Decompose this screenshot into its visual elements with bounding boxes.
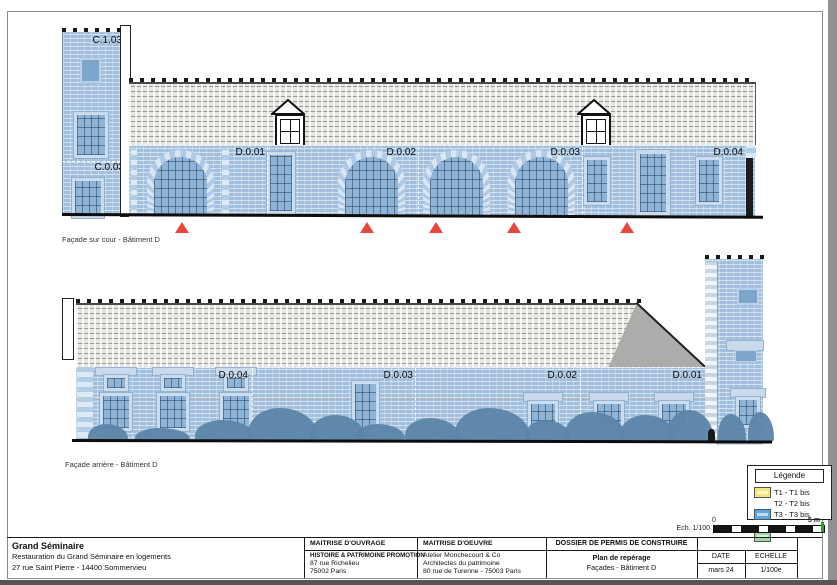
titleblock-top-line xyxy=(7,537,822,538)
moe-name: Atelier Monchecourt & Co xyxy=(423,552,500,560)
dossier-subtitle: Façades - Bâtiment D xyxy=(546,564,697,572)
moa-header: MAITRISE D'OUVRAGE xyxy=(310,540,385,548)
drawing-sheet: C.1.03 C.0.03 xyxy=(0,0,837,585)
titleblock-vline xyxy=(304,537,305,578)
moe-header: MAITRISE D'OEUVRE xyxy=(423,540,493,548)
echelle-header: ECHELLE xyxy=(745,553,797,561)
moa-name: HISTOIRE & PATRIMOINE PROMOTION xyxy=(310,552,425,559)
moa-line2: 87 rue Richelieu xyxy=(310,560,359,568)
date-value: mars 24 xyxy=(697,567,745,575)
date-header: DATE xyxy=(697,553,745,561)
project-line3: 27 rue Saint Pierre - 14400 Sommervieu xyxy=(12,564,146,573)
titleblock-hline xyxy=(697,563,798,564)
titleblock-vline xyxy=(797,537,798,578)
moe-line2: Architectes du patrimoine xyxy=(423,560,500,568)
project-line2: Restauration du Grand Séminaire en logem… xyxy=(12,553,171,562)
title-block: Grand Séminaire Restauration du Grand Sé… xyxy=(0,0,837,585)
moa-line3: 75002 Paris xyxy=(310,568,346,576)
echelle-value: 1/100e xyxy=(745,567,797,575)
dossier-title: Plan de repérage xyxy=(546,554,697,562)
project-name: Grand Séminaire xyxy=(12,541,84,551)
dossier-header: DOSSIER DE PERMIS DE CONSTRUIRE xyxy=(546,540,697,548)
titleblock-hline xyxy=(304,550,798,551)
moe-line3: 80 rue de Turenne - 75003 Paris xyxy=(423,568,521,576)
